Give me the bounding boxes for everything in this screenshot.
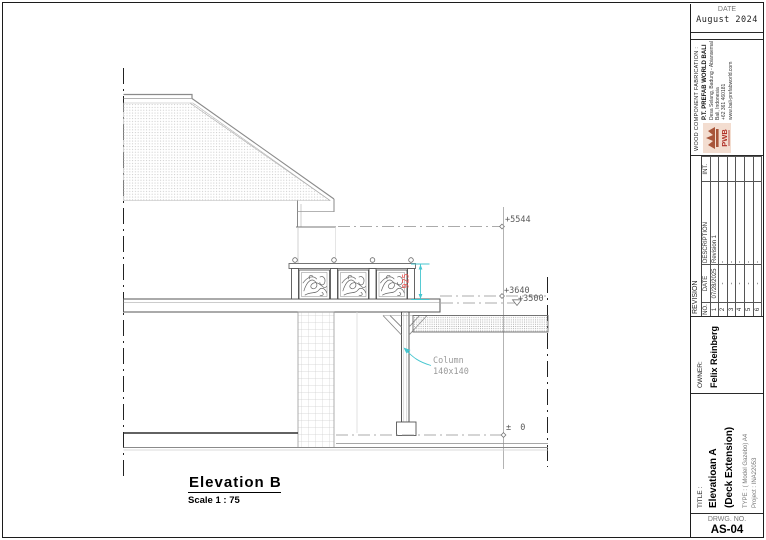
level-label-deck-roof: +3500 <box>518 294 544 304</box>
title-label: TITLE : <box>697 394 704 508</box>
revision-row-cell: 4 <box>736 302 745 316</box>
revision-row-cell <box>728 156 737 181</box>
logo-text: PWB <box>720 128 729 146</box>
revision-title: REVISION <box>691 156 702 316</box>
ground-lines <box>124 444 549 451</box>
revision-row-cell: - <box>754 264 763 302</box>
revision-row-cell: 5 <box>745 302 754 316</box>
company-website: www.bali-prefabworld.com <box>728 41 734 120</box>
revision-row-cell: 3 <box>728 302 737 316</box>
revision-row-cell: 07/28/2025 <box>711 264 720 302</box>
revision-col-description: DESCRIPTION <box>702 181 711 264</box>
owner-name: Felix Reinberg <box>709 317 719 388</box>
elevation-drawing-area: +5544 +3640 +3500 ± 0 925 Column140x140 … <box>0 0 690 540</box>
revision-row-cell: 1 <box>711 302 720 316</box>
title-line1: Elevatioan A <box>707 394 720 508</box>
revision-row-cell: - <box>754 181 763 264</box>
revision-col-int: INT. <box>702 156 711 181</box>
owner-label: OWNER: <box>697 317 704 388</box>
elevation-view <box>0 0 690 540</box>
revision-row-cell <box>719 156 728 181</box>
level-line-ground <box>336 433 506 438</box>
title-block: DATE August 2024 WOOD COMPONENT FABRICAT… <box>690 4 763 537</box>
crown-icon: PWB <box>703 123 731 153</box>
lower-roof-slab <box>413 316 548 333</box>
company-box: WOOD COMPONENT FABRICATION : PWB P.T. PR… <box>691 40 763 156</box>
brick-pier <box>298 312 334 448</box>
spacer-strip <box>691 33 763 40</box>
revision-row-cell: - <box>719 181 728 264</box>
revision-row-cell: - <box>736 264 745 302</box>
revision-row-cell: - <box>728 264 737 302</box>
level-line-5544 <box>338 224 504 229</box>
date-label: DATE <box>691 6 763 13</box>
drawing-number-label: DRWG. NO. <box>691 516 763 523</box>
column-footing <box>397 422 417 436</box>
roof <box>124 95 335 201</box>
type-line: TYPE : ( Model Gazebo) A4 <box>742 394 750 508</box>
revision-row-cell <box>745 156 754 181</box>
revision-table: NO. DATE DESCRIPTION INT. 1 07/28/2025 R… <box>702 156 762 316</box>
revision-row-cell: Revision 1 <box>711 181 720 264</box>
drawing-number-value: AS-04 <box>691 524 763 536</box>
view-title-underline <box>188 492 281 493</box>
drawing-sheet: +5544 +3640 +3500 ± 0 925 Column140x140 … <box>0 0 766 540</box>
drawing-number-box: DRWG. NO. AS-04 <box>691 514 763 540</box>
deck-slab <box>124 299 441 312</box>
project-line: Project : INA22053 <box>751 394 759 508</box>
revision-row-cell: - <box>745 264 754 302</box>
railing-post-finials <box>293 258 414 263</box>
revision-row-cell: - <box>736 181 745 264</box>
view-scale: Scale 1 : 75 <box>188 495 240 506</box>
level-label-ground: ± 0 <box>506 423 527 433</box>
revision-box: REVISION NO. DATE DESCRIPTION INT. 1 07/… <box>691 156 763 317</box>
revision-row-cell: 2 <box>719 302 728 316</box>
pwb-logo: PWB <box>703 123 731 153</box>
view-title: Elevation B <box>189 474 282 491</box>
owner-box: OWNER: Felix Reinberg <box>691 317 763 394</box>
revision-row-cell <box>711 156 720 181</box>
railing <box>289 258 416 299</box>
title-box: TITLE : Elevatioan A (Deck Extension) TY… <box>691 394 763 514</box>
carved-panels <box>299 270 407 299</box>
level-label-ridge: +5544 <box>505 215 531 225</box>
revision-row-cell: 6 <box>754 302 763 316</box>
company-name: P.T. PREFAB WORLD BALI <box>701 41 709 120</box>
date-value: August 2024 <box>691 15 763 25</box>
revision-row-cell: - <box>745 181 754 264</box>
column-label: Column140x140 <box>433 356 469 377</box>
revision-row-cell: - <box>728 181 737 264</box>
revision-row-cell: - <box>719 264 728 302</box>
fabrication-label: WOOD COMPONENT FABRICATION : <box>694 40 700 151</box>
level-line-3500 <box>441 300 522 306</box>
revision-row-cell <box>754 156 763 181</box>
railing-height-dimension: 925 <box>402 273 412 288</box>
title-line2: (Deck Extension) <box>723 394 736 508</box>
revision-col-date: DATE <box>702 264 711 302</box>
revision-row-cell <box>736 156 745 181</box>
revision-col-no: NO. <box>702 302 711 316</box>
date-box: DATE August 2024 <box>691 4 763 33</box>
